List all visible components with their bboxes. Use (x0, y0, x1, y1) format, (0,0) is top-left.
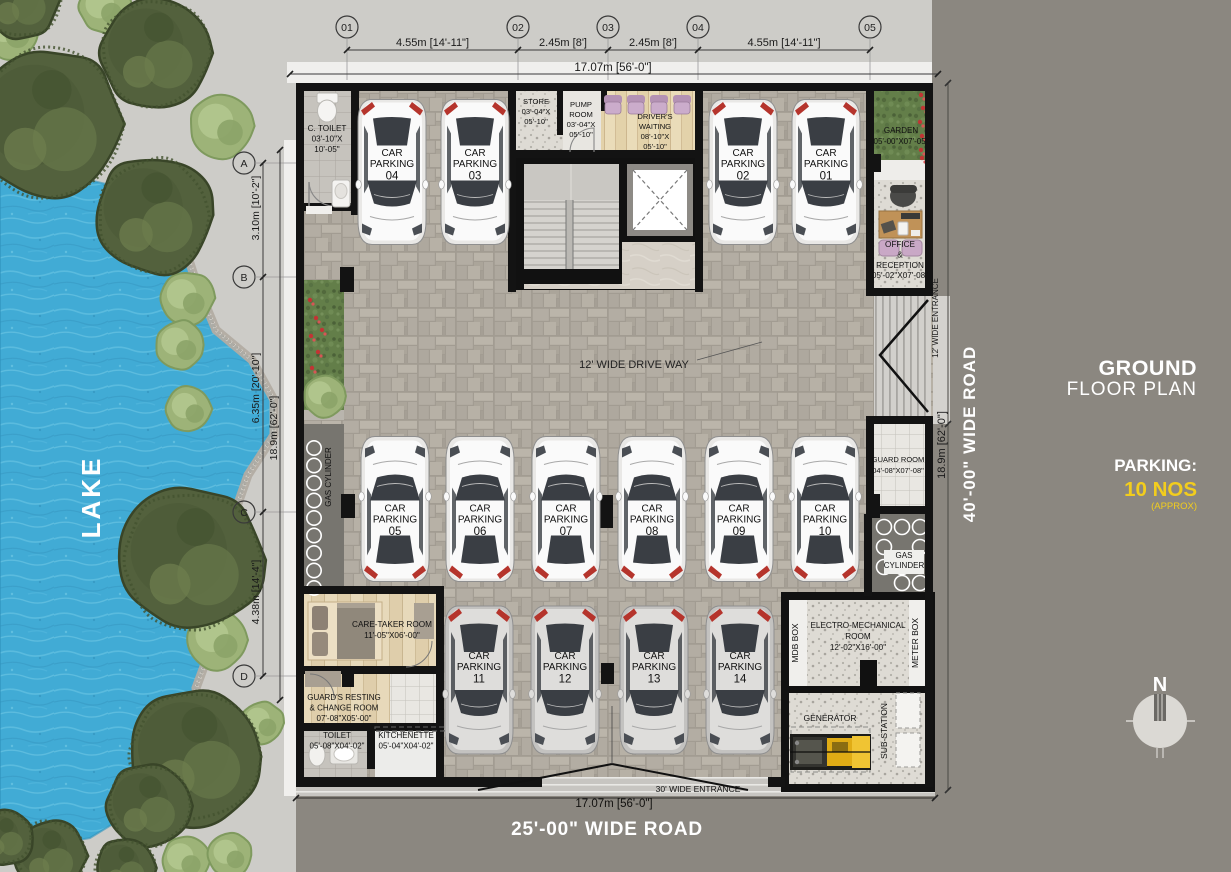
svg-text:14: 14 (734, 674, 747, 686)
svg-text:CAR: CAR (641, 504, 662, 515)
svg-text:CAR: CAR (729, 651, 750, 662)
svg-text:STORE: STORE (523, 97, 549, 106)
svg-text:CAR: CAR (464, 148, 485, 159)
svg-text:CAR: CAR (555, 504, 576, 515)
svg-text:SUB-STATION: SUB-STATION (879, 703, 889, 759)
svg-text:10: 10 (819, 526, 832, 538)
svg-text:CAR: CAR (732, 148, 753, 159)
svg-text:2.45m [8']: 2.45m [8'] (629, 37, 677, 49)
svg-text:12: 12 (559, 674, 572, 686)
svg-text:PARKING: PARKING (373, 515, 417, 526)
svg-text:04'-08"X07'-08": 04'-08"X07'-08" (872, 466, 924, 475)
svg-text:11: 11 (473, 674, 485, 686)
svg-text:3.10m [10'-2"]: 3.10m [10'-2"] (250, 176, 262, 241)
svg-text:05: 05 (864, 22, 876, 34)
svg-text:02: 02 (737, 171, 750, 183)
svg-text:ROOM: ROOM (569, 110, 593, 119)
svg-text:C: C (240, 507, 248, 519)
svg-text:05'-04"X04'-02": 05'-04"X04'-02" (379, 742, 434, 751)
svg-text:03'-04"X: 03'-04"X (567, 120, 596, 129)
svg-text:03'-04"X: 03'-04"X (522, 107, 551, 116)
svg-text:02: 02 (512, 22, 524, 34)
svg-text:06: 06 (474, 526, 487, 538)
svg-text:08'-10"X: 08'-10"X (641, 132, 670, 141)
svg-text:CAR: CAR (384, 504, 405, 515)
svg-text:N: N (1153, 674, 1167, 696)
svg-text:& CHANGE ROOM: & CHANGE ROOM (310, 704, 379, 713)
svg-text:07: 07 (560, 526, 573, 538)
svg-text:08: 08 (646, 526, 659, 538)
svg-text:04: 04 (386, 171, 399, 183)
svg-text:GUARD ROOM: GUARD ROOM (872, 455, 925, 464)
svg-text:GAS CYLINDER: GAS CYLINDER (324, 447, 333, 507)
svg-text:PARKING: PARKING (721, 159, 765, 170)
svg-text:PARKING:: PARKING: (1114, 456, 1197, 475)
svg-text:6.35m [20'-10"]: 6.35m [20'-10"] (250, 353, 262, 424)
svg-text:KITCHENETTE: KITCHENETTE (378, 731, 434, 740)
svg-text:CAR: CAR (815, 148, 836, 159)
svg-text:10'-05": 10'-05" (314, 145, 340, 154)
svg-text:03: 03 (469, 171, 482, 183)
svg-text:PARKING: PARKING (632, 662, 676, 673)
svg-text:CAR: CAR (468, 651, 489, 662)
svg-text:05'-00"X07'-05": 05'-00"X07'-05" (874, 137, 929, 146)
svg-text:PARKING: PARKING (717, 515, 761, 526)
svg-text:PARKING: PARKING (458, 515, 502, 526)
svg-text:40'-00" WIDE ROAD: 40'-00" WIDE ROAD (960, 346, 979, 522)
svg-text:11'-05"X06'-00": 11'-05"X06'-00" (364, 631, 420, 640)
svg-text:09: 09 (733, 526, 746, 538)
svg-text:CYLINDER: CYLINDER (884, 561, 925, 570)
svg-text:A: A (240, 158, 247, 170)
svg-text:CAR: CAR (643, 651, 664, 662)
svg-text:PARKING: PARKING (544, 515, 588, 526)
svg-text:GARDEN: GARDEN (884, 126, 918, 135)
svg-text:05'-10": 05'-10" (524, 117, 548, 126)
svg-text:03: 03 (602, 22, 614, 34)
svg-text:METER BOX: METER BOX (910, 618, 920, 668)
svg-text:PARKING: PARKING (457, 662, 501, 673)
svg-text:07'-08"X05'-00": 07'-08"X05'-00" (317, 714, 372, 723)
svg-text:05'-10": 05'-10" (569, 130, 593, 139)
svg-text:CAR: CAR (554, 651, 575, 662)
svg-text:12'-02"X16'-00": 12'-02"X16'-00" (830, 643, 886, 652)
svg-text:DRIVER'S: DRIVER'S (637, 112, 672, 121)
svg-text:PARKING: PARKING (543, 662, 587, 673)
svg-text:12' WIDE DRIVE WAY: 12' WIDE DRIVE WAY (579, 359, 689, 371)
svg-text:CAR: CAR (469, 504, 490, 515)
svg-text:05: 05 (389, 526, 402, 538)
svg-text:PUMP: PUMP (570, 100, 592, 109)
svg-text:4.55m [14'-11"]: 4.55m [14'-11"] (747, 37, 820, 49)
svg-text:4.38m [14'-4"]: 4.38m [14'-4"] (250, 560, 262, 625)
svg-text:01: 01 (820, 171, 833, 183)
svg-text:D: D (240, 671, 248, 683)
svg-text:GUARD'S RESTING: GUARD'S RESTING (307, 693, 381, 702)
svg-text:03'-10"X: 03'-10"X (312, 135, 343, 144)
svg-text:GAS: GAS (896, 551, 913, 560)
svg-text:04: 04 (692, 22, 704, 34)
svg-text:CAR: CAR (381, 148, 402, 159)
svg-text:WAITING: WAITING (639, 122, 671, 131)
svg-text:TOILET: TOILET (323, 731, 351, 740)
svg-text:25'-00" WIDE ROAD: 25'-00" WIDE ROAD (511, 819, 703, 840)
svg-text:OFFICE: OFFICE (885, 240, 916, 249)
svg-text:05'-08"X04'-02": 05'-08"X04'-02" (310, 742, 365, 751)
svg-text:FLOOR PLAN: FLOOR PLAN (1067, 379, 1197, 400)
svg-text:&: & (897, 250, 903, 259)
svg-text:CAR: CAR (814, 504, 835, 515)
svg-text:18.9m [62'-0"]: 18.9m [62'-0"] (268, 396, 280, 461)
svg-text:(APPROX): (APPROX) (1151, 501, 1197, 512)
svg-text:LAKE: LAKE (76, 456, 106, 539)
svg-text:C. TOILET: C. TOILET (308, 124, 347, 133)
svg-text:10 NOS: 10 NOS (1124, 478, 1197, 501)
svg-text:PARKING: PARKING (718, 662, 762, 673)
svg-text:B: B (240, 272, 247, 284)
svg-text:2.45m [8']: 2.45m [8'] (539, 37, 587, 49)
svg-text:PARKING: PARKING (370, 159, 414, 170)
svg-text:17.07m [56'-0"]: 17.07m [56'-0"] (575, 798, 652, 810)
svg-text:MDB BOX: MDB BOX (790, 623, 800, 663)
svg-text:PARKING: PARKING (803, 515, 847, 526)
svg-text:RECEPTION: RECEPTION (876, 261, 924, 270)
svg-text:01: 01 (341, 22, 353, 34)
svg-text:05'-02"X07'-08": 05'-02"X07'-08" (872, 271, 928, 280)
svg-text:CARE-TAKER ROOM: CARE-TAKER ROOM (352, 620, 432, 629)
svg-text:05'-10": 05'-10" (643, 142, 667, 151)
svg-text:13: 13 (648, 674, 661, 686)
svg-text:GENERATOR: GENERATOR (803, 713, 856, 723)
svg-text:17.07m [56'-0"]: 17.07m [56'-0"] (574, 62, 651, 74)
svg-text:PARKING: PARKING (453, 159, 497, 170)
svg-text:18.9m [62'-0"]: 18.9m [62'-0"] (936, 411, 948, 479)
svg-text:CAR: CAR (728, 504, 749, 515)
svg-text:4.55m [14'-11"]: 4.55m [14'-11"] (396, 37, 469, 49)
svg-text:PARKING: PARKING (804, 159, 848, 170)
svg-text:12' WIDE ENTRANCE: 12' WIDE ENTRANCE (931, 278, 940, 358)
svg-text:ELECTRO-MECHANICAL: ELECTRO-MECHANICAL (810, 621, 906, 630)
svg-text:GROUND: GROUND (1098, 356, 1197, 380)
svg-text:PARKING: PARKING (630, 515, 674, 526)
svg-text:ROOM: ROOM (845, 632, 871, 641)
